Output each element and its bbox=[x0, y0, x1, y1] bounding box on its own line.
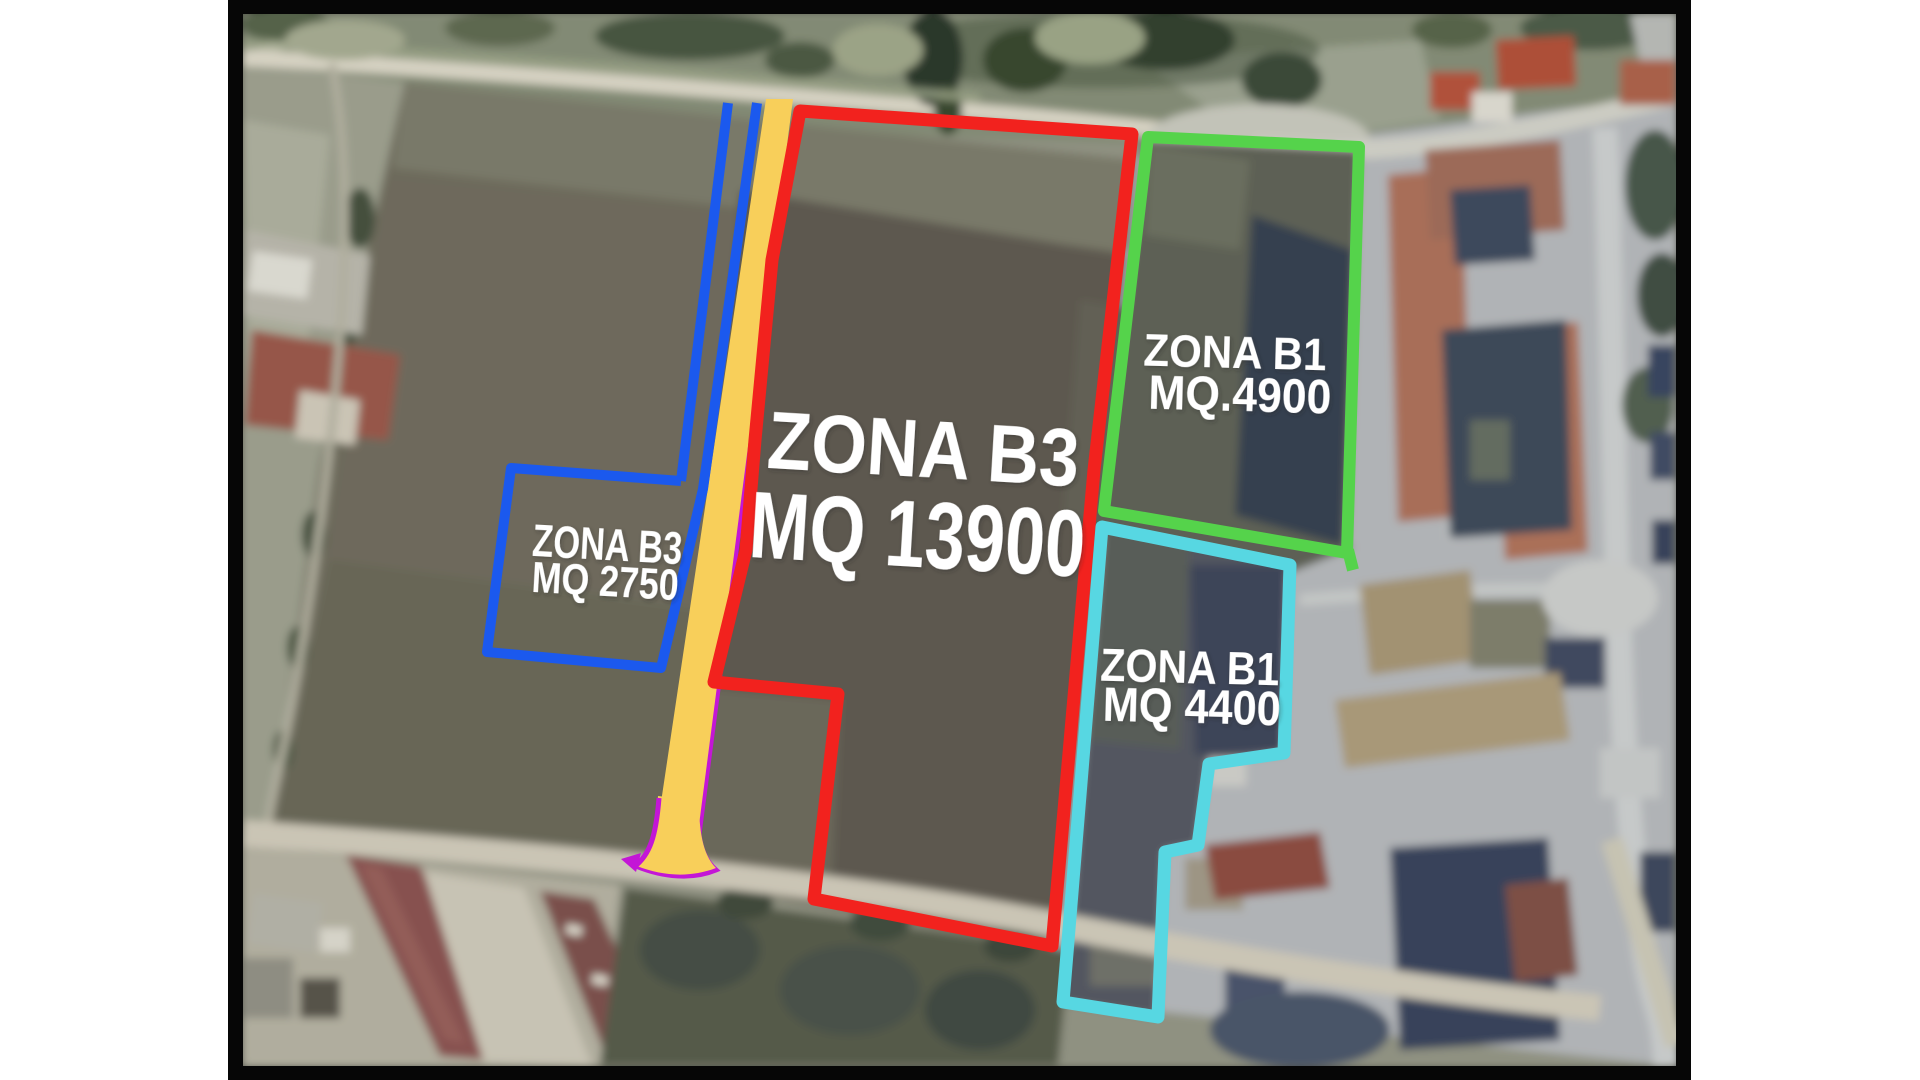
svg-text:MQ 2750: MQ 2750 bbox=[530, 553, 680, 610]
svg-text:MQ 4400: MQ 4400 bbox=[1102, 679, 1281, 737]
svg-text:MQ.4900: MQ.4900 bbox=[1148, 367, 1332, 425]
svg-text:MQ 13900: MQ 13900 bbox=[746, 472, 1088, 598]
